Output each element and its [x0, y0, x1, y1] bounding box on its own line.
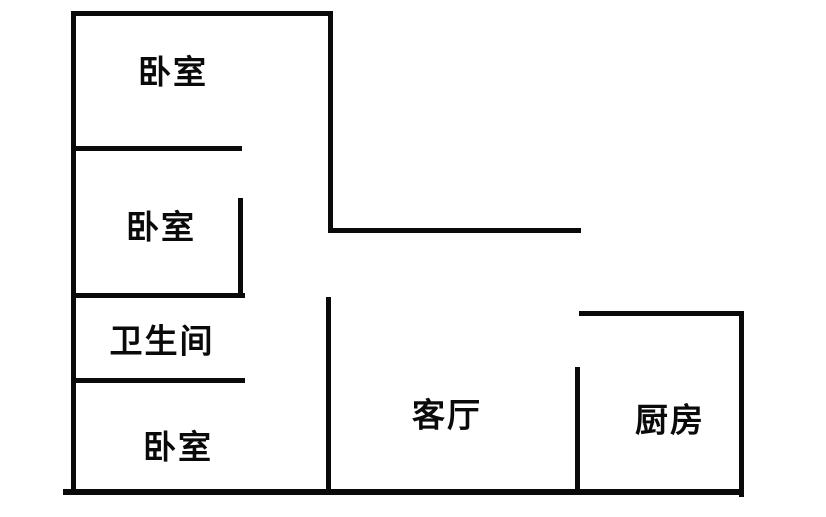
bedroom-top-divider — [71, 146, 242, 151]
hall-right-wall — [328, 11, 333, 233]
hall-bottom-line — [328, 228, 581, 233]
left-wall — [71, 11, 76, 494]
room-label-bedroom-middle: 卧室 — [126, 211, 196, 244]
bedroom-middle-right-wall — [238, 198, 243, 298]
room-label-bedroom-bottom: 卧室 — [143, 431, 213, 464]
bottom-wall — [63, 489, 743, 495]
bedroom-middle-divider — [71, 293, 245, 298]
kitchen-right-wall — [739, 311, 744, 497]
kitchen-top-wall — [579, 311, 744, 316]
room-label-kitchen: 厨房 — [635, 404, 705, 437]
top-wall — [71, 11, 333, 16]
living-room-left-wall — [326, 297, 331, 494]
bathroom-divider — [71, 378, 245, 383]
floor-plan: 卧室 卧室 卫生间 卧室 客厅 厨房 — [0, 0, 826, 517]
room-label-bathroom: 卫生间 — [110, 325, 215, 358]
kitchen-left-wall — [575, 367, 580, 490]
room-label-bedroom-top: 卧室 — [138, 56, 208, 89]
room-label-living-room: 客厅 — [412, 399, 482, 432]
